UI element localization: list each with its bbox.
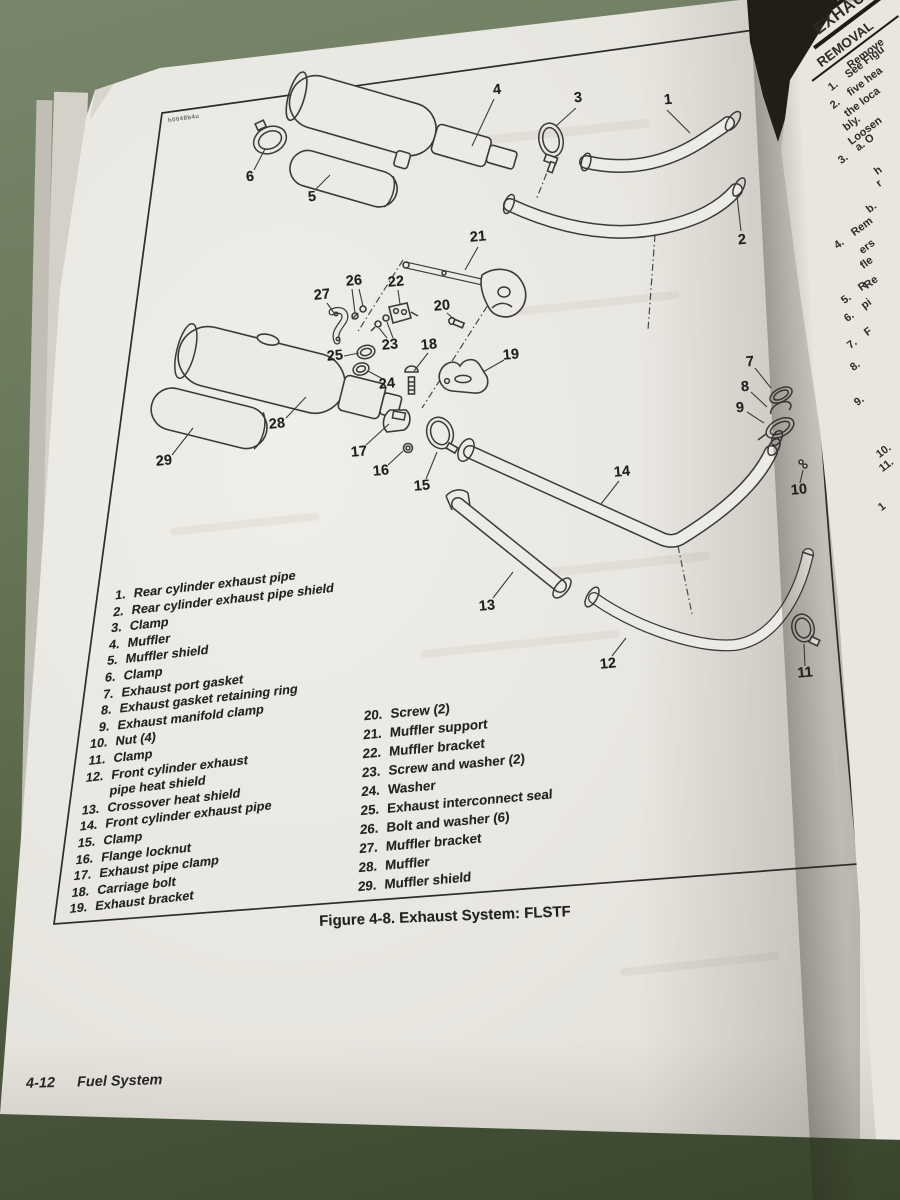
callout-20: 20	[433, 297, 450, 314]
callout-29: 29	[155, 452, 172, 469]
callout-3: 3	[573, 90, 582, 107]
callout-21: 21	[469, 228, 486, 245]
callout-26: 26	[345, 272, 362, 289]
callout-6: 6	[245, 169, 254, 186]
callout-24: 24	[378, 375, 395, 392]
callout-4: 4	[492, 82, 501, 99]
callout-10: 10	[790, 481, 807, 498]
callout-18: 18	[420, 336, 437, 353]
callout-19: 19	[502, 346, 519, 363]
footer-section: Fuel System	[77, 1072, 163, 1090]
book-photo: 1234567891011121314151617181920212223242…	[0, 0, 900, 1200]
callout-25: 25	[326, 347, 343, 364]
callout-8: 8	[740, 379, 749, 396]
callout-11: 11	[797, 664, 814, 681]
parts-list-right: 20.Screw (2)21.Muffler support22.Muffler…	[349, 690, 556, 897]
callout-28: 28	[268, 415, 285, 432]
callout-12: 12	[599, 655, 616, 672]
callout-22: 22	[387, 273, 404, 290]
callout-1: 1	[663, 92, 672, 109]
callout-15: 15	[413, 477, 430, 494]
callout-2: 2	[737, 232, 746, 249]
callout-16: 16	[372, 462, 389, 479]
callout-9: 9	[735, 400, 744, 417]
callout-7: 7	[745, 354, 754, 371]
callout-13: 13	[478, 597, 495, 614]
footer-page-number: 4-12	[26, 1075, 55, 1092]
parts-list-left: 1.Rear cylinder exhaust pipe2.Rear cylin…	[63, 563, 337, 918]
callout-27: 27	[313, 286, 330, 303]
callout-23: 23	[381, 336, 398, 353]
callout-17: 17	[350, 443, 367, 460]
callout-14: 14	[613, 463, 630, 480]
callout-5: 5	[307, 189, 316, 206]
